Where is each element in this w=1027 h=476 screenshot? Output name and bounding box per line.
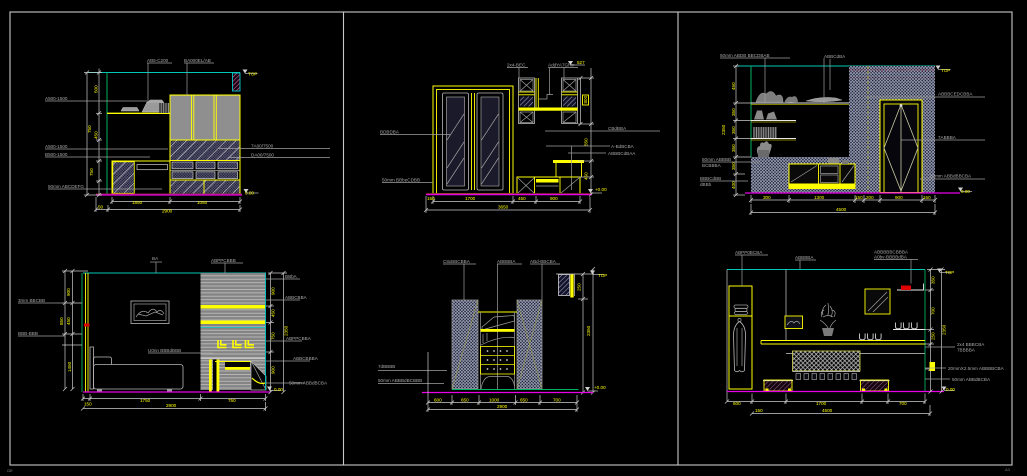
svg-text:+0.00: +0.00 xyxy=(595,187,607,192)
svg-text:7BBBBA: 7BBBBA xyxy=(957,348,976,353)
svg-text:50mm ABCDEFG: 50mm ABCDEFG xyxy=(48,184,84,189)
svg-text:700: 700 xyxy=(899,401,907,406)
svg-text:50mm ABBdBCBA: 50mm ABBdBCBA xyxy=(289,381,328,386)
svg-text:2350: 2350 xyxy=(942,324,947,335)
svg-text:700: 700 xyxy=(931,307,936,315)
svg-text:2350: 2350 xyxy=(586,325,591,336)
svg-text:ABBBBA: ABBBBA xyxy=(497,259,516,264)
svg-text:4500: 4500 xyxy=(822,408,833,413)
svg-text:ABBBBA: ABBBBA xyxy=(795,255,814,260)
svg-text:GE: GE xyxy=(7,468,13,473)
svg-text:BCBBBA: BCBBBA xyxy=(702,163,722,168)
svg-text:350: 350 xyxy=(731,162,736,170)
svg-text:900: 900 xyxy=(550,196,558,201)
svg-text:1450: 1450 xyxy=(67,361,72,372)
svg-text:U0nn BBBdBBB: U0nn BBBdBBB xyxy=(148,348,181,353)
svg-text:BA: BA xyxy=(152,256,159,261)
svg-text:450: 450 xyxy=(271,309,276,317)
svg-text:150: 150 xyxy=(84,402,92,407)
svg-text:B500-1500: B500-1500 xyxy=(45,152,68,157)
svg-text:1000: 1000 xyxy=(489,398,500,403)
svg-text:750: 750 xyxy=(89,168,94,176)
svg-text:550: 550 xyxy=(584,138,589,146)
svg-text:A-BdBCBA: A-BdBCBA xyxy=(611,144,635,149)
svg-text:800: 800 xyxy=(583,95,588,103)
svg-text:900: 900 xyxy=(271,366,276,374)
svg-text:ABBCBBBA: ABBCBBBA xyxy=(293,356,319,361)
svg-text:50mm ABBdBBCBA: 50mm ABBdBBCBA xyxy=(930,174,972,179)
svg-text:1850: 1850 xyxy=(132,200,143,205)
svg-text:350: 350 xyxy=(731,126,736,134)
svg-text:C8xBBCBBA: C8xBBCBBA xyxy=(443,259,471,264)
svg-text:ABBBCEDCBBA: ABBBCEDCBBA xyxy=(938,92,973,97)
svg-text:2350: 2350 xyxy=(721,124,726,135)
svg-text:50mm ABBBB: 50mm ABBBB xyxy=(702,157,731,162)
svg-text:1700: 1700 xyxy=(465,196,476,201)
svg-text:527: 527 xyxy=(577,60,585,65)
svg-text:0.00: 0.00 xyxy=(946,387,955,392)
svg-text:50: 50 xyxy=(98,205,104,210)
svg-text:A500-1500: A500-1500 xyxy=(45,144,68,149)
svg-text:BBB-BBB: BBB-BBB xyxy=(18,331,38,336)
svg-text:400: 400 xyxy=(731,181,736,189)
svg-text:900: 900 xyxy=(66,288,71,296)
svg-text:AB5-C200: AB5-C200 xyxy=(147,58,169,63)
svg-text:450: 450 xyxy=(94,131,99,139)
svg-text:300: 300 xyxy=(763,195,771,200)
svg-text:1050: 1050 xyxy=(197,200,208,205)
svg-text:ABBCBBA: ABBCBBA xyxy=(285,295,308,300)
svg-text:350: 350 xyxy=(731,108,736,116)
svg-text:150: 150 xyxy=(427,196,435,201)
svg-text:150: 150 xyxy=(755,408,763,413)
svg-text:50mm ABBBdBCBBB: 50mm ABBBdBCBBB xyxy=(378,378,422,383)
svg-text:3650: 3650 xyxy=(498,205,509,210)
svg-text:650: 650 xyxy=(520,398,528,403)
svg-text:3mm BBCBB: 3mm BBCBB xyxy=(18,298,45,303)
svg-text:ABBBCdBAA: ABBBCdBAA xyxy=(608,151,636,156)
svg-text:TOP: TOP xyxy=(598,273,607,278)
svg-text:200: 200 xyxy=(866,195,874,200)
svg-text:150: 150 xyxy=(923,195,931,200)
svg-text:350: 350 xyxy=(931,276,936,284)
svg-text:DA00/7500: DA00/7500 xyxy=(251,153,274,158)
svg-text:150: 150 xyxy=(855,195,863,200)
svg-text:2x4 BBBCBA: 2x4 BBBCBA xyxy=(957,342,985,347)
svg-text:450: 450 xyxy=(66,317,71,325)
svg-text:2900: 2900 xyxy=(162,209,173,214)
svg-text:BBBCdBB: BBBCdBB xyxy=(700,176,721,181)
svg-text:2350: 2350 xyxy=(284,325,289,336)
svg-text:350: 350 xyxy=(731,144,736,152)
svg-text:900: 900 xyxy=(271,287,276,295)
svg-text:700: 700 xyxy=(553,398,561,403)
svg-text:50mm ABBdBCBA: 50mm ABBdBCBA xyxy=(952,377,991,382)
svg-text:ABPPCBBA: ABPPCBBA xyxy=(286,336,312,341)
svg-text:500: 500 xyxy=(94,85,99,93)
svg-text:2900: 2900 xyxy=(497,404,508,409)
svg-text:450: 450 xyxy=(518,196,526,201)
svg-text:1750: 1750 xyxy=(140,398,151,403)
svg-text:0.00: 0.00 xyxy=(274,387,283,392)
svg-text:CBdBBA: CBdBBA xyxy=(608,126,627,131)
svg-text:450: 450 xyxy=(731,82,736,90)
svg-text:0.00: 0.00 xyxy=(245,191,254,196)
svg-text:750: 750 xyxy=(228,398,236,403)
svg-text:TOP: TOP xyxy=(941,68,950,73)
svg-text:600: 600 xyxy=(434,398,442,403)
svg-text:4500: 4500 xyxy=(836,207,847,212)
svg-text:BA000EL/AB: BA000EL/AB xyxy=(184,58,211,63)
svg-text:7dBBBB: 7dBBBB xyxy=(378,364,395,369)
svg-text:ABPPCBBB: ABPPCBBB xyxy=(211,258,236,263)
svg-text:850: 850 xyxy=(59,317,64,325)
svg-text:+0.00: +0.00 xyxy=(594,385,606,390)
svg-text:7A00/7500: 7A00/7500 xyxy=(251,144,274,149)
svg-text:750: 750 xyxy=(271,332,276,340)
svg-text:20mmX2.5mm ABBBBCBA: 20mmX2.5mm ABBBBCBA xyxy=(948,366,1005,371)
svg-text:TOP: TOP xyxy=(248,72,257,77)
svg-text:1300: 1300 xyxy=(814,195,825,200)
svg-text:50mm BBbeCDBB: 50mm BBbeCDBB xyxy=(382,178,420,183)
svg-text:50mm ABDB BBCDBAB: 50mm ABDB BBCDBAB xyxy=(720,53,770,58)
svg-text:A0bv-BBBBdBA: A0bv-BBBBdBA xyxy=(874,255,908,260)
svg-text:1700: 1700 xyxy=(816,401,827,406)
svg-text:2x4-BEC: 2x4-BEC xyxy=(507,63,526,68)
svg-text:BDBDBA: BDBDBA xyxy=(380,130,400,135)
svg-text:BBbA: BBbA xyxy=(285,274,298,279)
svg-text:dBBb: dBBb xyxy=(700,182,712,187)
svg-text:AddYA7Ghm: AddYA7Ghm xyxy=(548,63,575,68)
svg-text:A500-1500: A500-1500 xyxy=(45,96,68,101)
svg-text:0.00: 0.00 xyxy=(961,189,970,194)
svg-text:650: 650 xyxy=(461,398,469,403)
svg-text:250: 250 xyxy=(931,332,936,340)
svg-text:900: 900 xyxy=(895,195,903,200)
svg-text:450: 450 xyxy=(584,172,589,180)
svg-text:250: 250 xyxy=(577,283,582,291)
svg-text:ABd-BBCBA: ABd-BBCBA xyxy=(530,259,557,264)
svg-text:7ABBBA: 7ABBBA xyxy=(938,135,957,140)
svg-text:ABPP0BCBA: ABPP0BCBA xyxy=(735,250,763,255)
svg-text:A3: A3 xyxy=(1005,467,1011,472)
svg-text:TOP: TOP xyxy=(945,270,954,275)
svg-text:2900: 2900 xyxy=(166,403,177,408)
svg-text:750: 750 xyxy=(87,125,92,133)
svg-text:ABBCdBA: ABBCdBA xyxy=(824,54,846,59)
svg-text:600: 600 xyxy=(733,401,741,406)
